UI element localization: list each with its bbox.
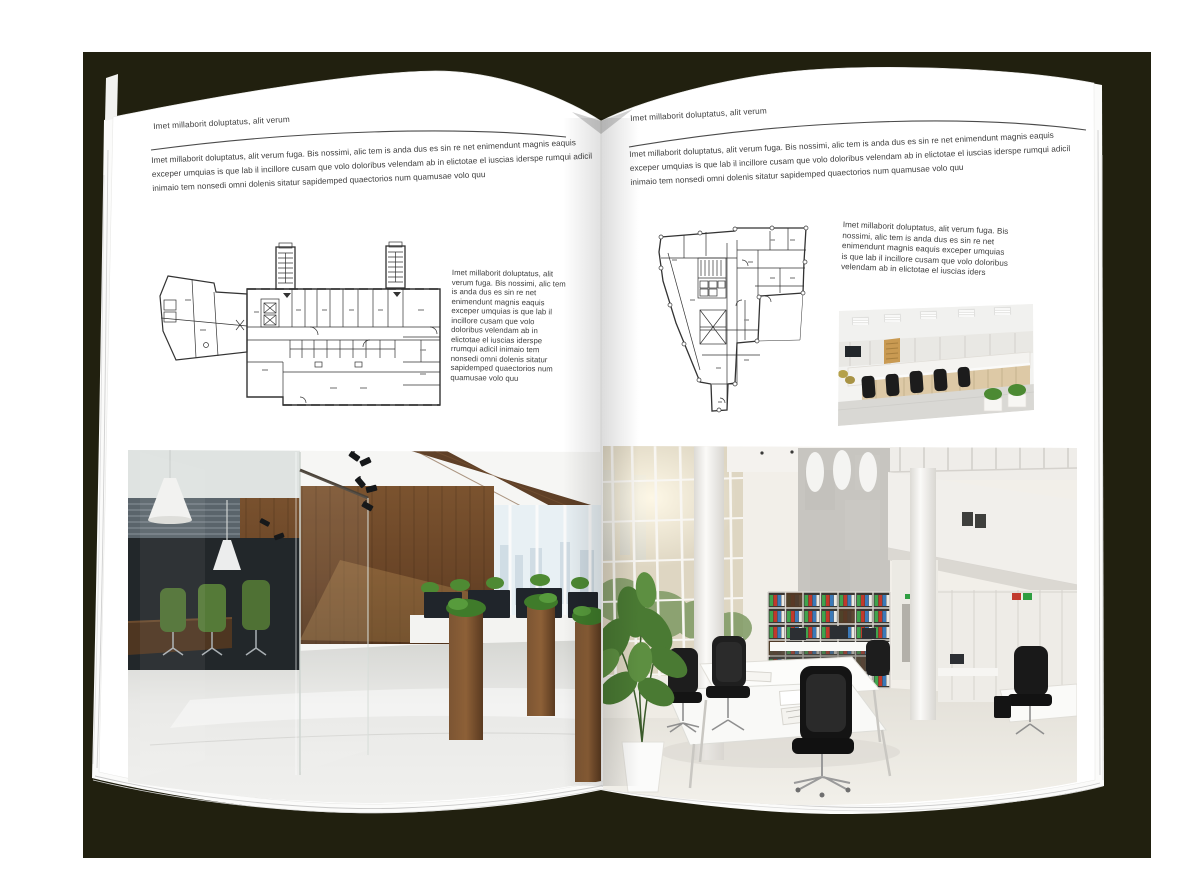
right-side-paragraph: Imet millaborit doluptatus, alit verum f… [841, 220, 1013, 280]
left-office-photo [128, 450, 606, 803]
spine-fold-shadow [563, 109, 639, 786]
right-office-photo [567, 428, 1077, 806]
small-office-photo [838, 303, 1035, 427]
magazine-mockup-scene: Imet millaborit doluptatus, alit verum I… [0, 0, 1200, 891]
left-side-paragraph: Imet millaborit doluptatus, alit verum f… [450, 268, 568, 384]
